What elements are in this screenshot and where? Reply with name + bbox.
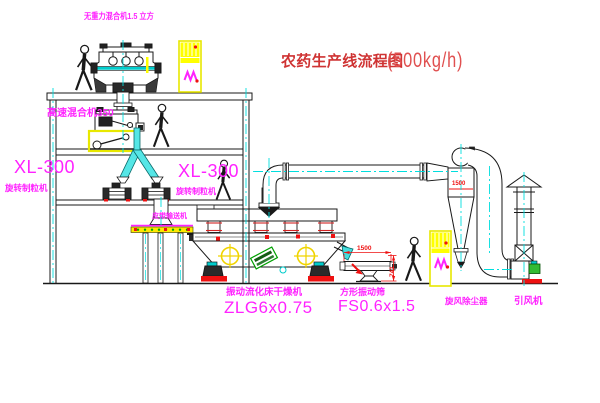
person-figure-4: [406, 237, 421, 280]
label-dryer-name: 振动流化床干燥机: [226, 288, 302, 298]
label-granulator-left-model: XL-300: [14, 158, 75, 176]
diagram-canvas: 农药生产线流程图 (500kg/h) 无重力混合机1.5 立方 高速混合机350…: [0, 0, 600, 403]
label-belt-conveyor: 皮带输送机: [152, 213, 187, 220]
dim-cyclone-body: 1500: [452, 181, 465, 187]
person-figure-1: [76, 45, 92, 90]
label-sieve-model: FS0.6x1.5: [338, 299, 415, 315]
label-fan: 引风机: [514, 297, 543, 307]
induced-draft-fan: [511, 261, 542, 284]
gravity-free-mixer: [91, 43, 161, 111]
granulator-right: [142, 177, 170, 202]
exhaust-pipe: [263, 163, 448, 203]
label-granulator-right-model: XL-300: [178, 162, 239, 180]
dim-sieve-length: 1500: [357, 246, 371, 253]
label-high-speed-mixer: 高速混合机350: [47, 109, 114, 119]
label-gravity-mixer: 无重力混合机1.5 立方: [84, 12, 154, 21]
dim-sieve-height: 741: [390, 266, 397, 277]
person-figure-2: [154, 104, 169, 147]
control-cabinet-right: [430, 231, 451, 286]
control-cabinet-top: [179, 41, 201, 92]
label-granulator-left-name: 旋转制粒机: [5, 184, 48, 193]
page-title-capacity: (500kg/h): [387, 50, 463, 71]
belt-conveyor: [131, 226, 201, 283]
page-title: 农药生产线流程图: [281, 54, 403, 69]
label-cyclone: 旋风除尘器: [445, 297, 488, 306]
label-dryer-model: ZLG6x0.75: [224, 299, 313, 316]
label-granulator-right-name: 旋转制粒机: [176, 188, 216, 196]
label-sieve-name: 方形振动筛: [340, 288, 385, 297]
granulator-left: [103, 177, 131, 202]
